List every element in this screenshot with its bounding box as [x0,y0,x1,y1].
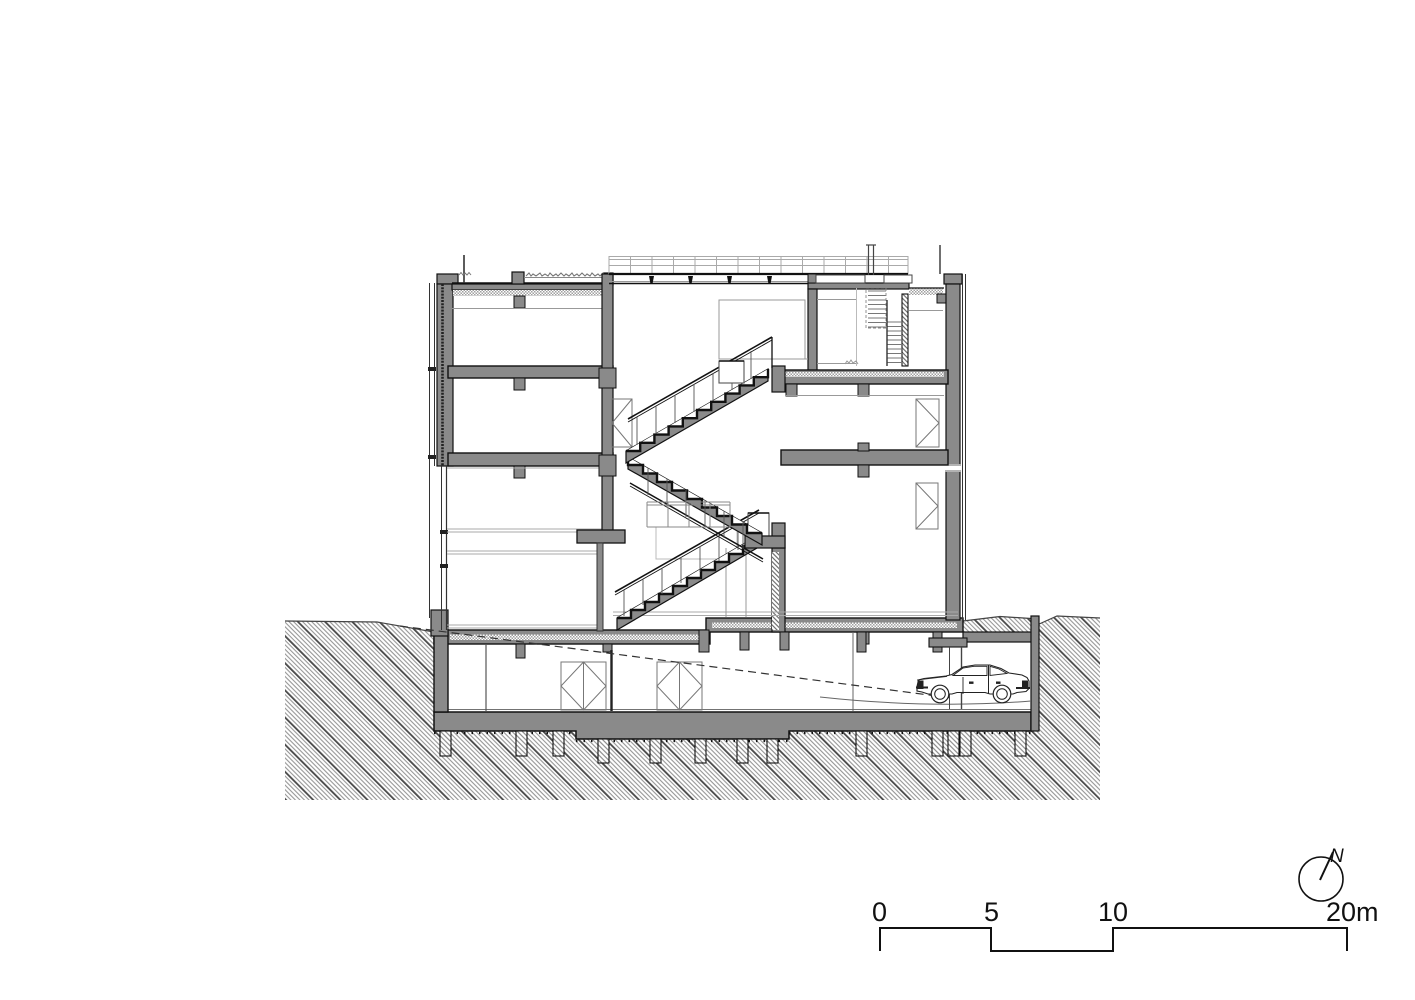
svg-text:5: 5 [984,897,999,927]
svg-text:N: N [1330,846,1344,867]
svg-text:0: 0 [872,897,887,927]
svg-text:20m: 20m [1326,897,1379,927]
svg-text:10: 10 [1098,897,1128,927]
